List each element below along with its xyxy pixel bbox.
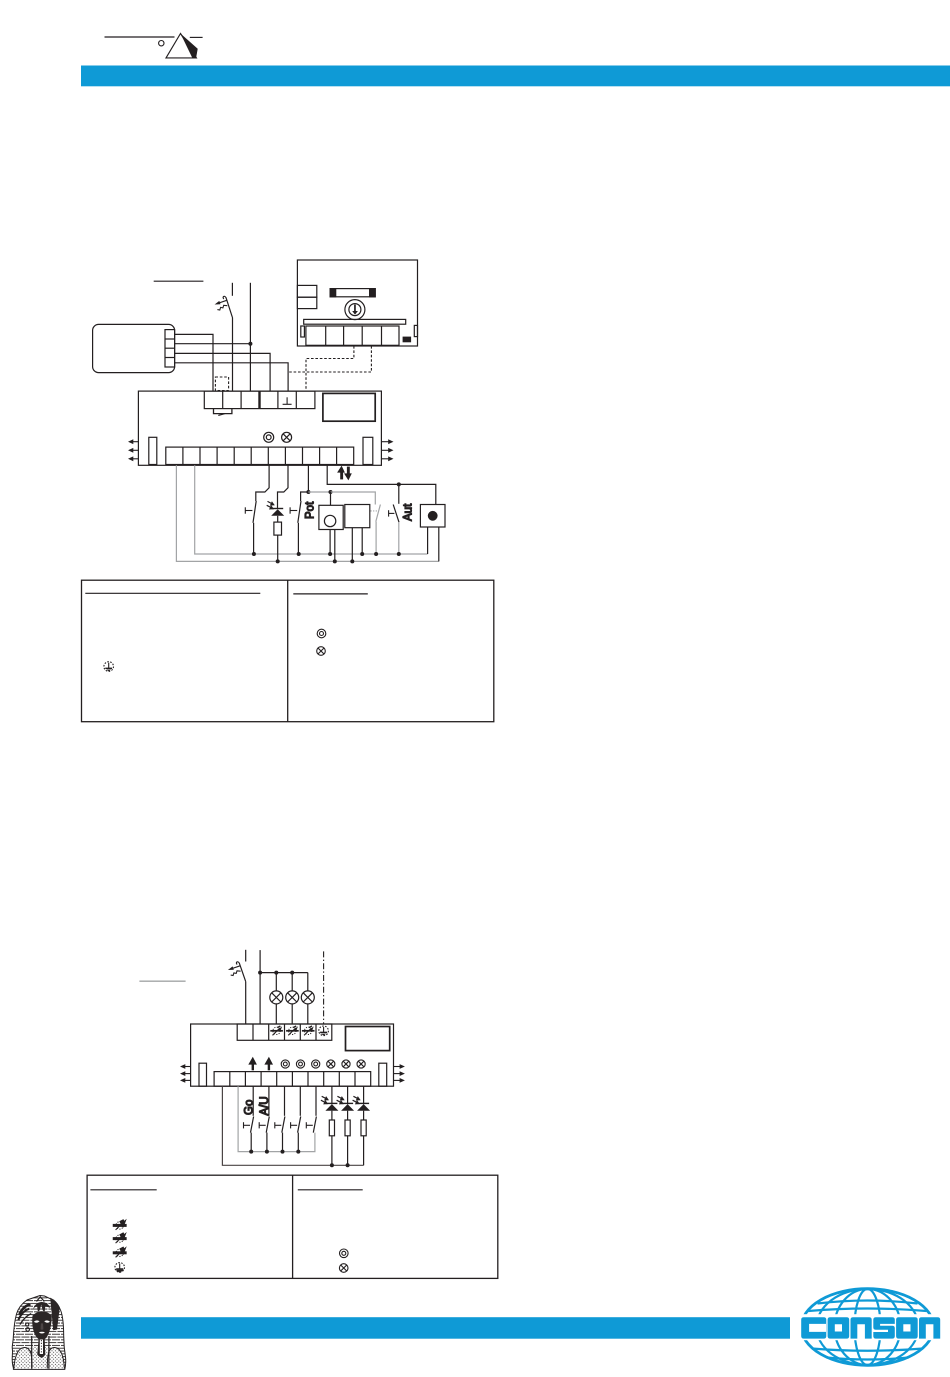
svg-text:Aut: Aut — [403, 503, 415, 521]
svg-text:A/U: A/U — [259, 1096, 271, 1115]
svg-text:Pot: Pot — [305, 501, 317, 519]
svg-text:Go: Go — [244, 1100, 256, 1115]
